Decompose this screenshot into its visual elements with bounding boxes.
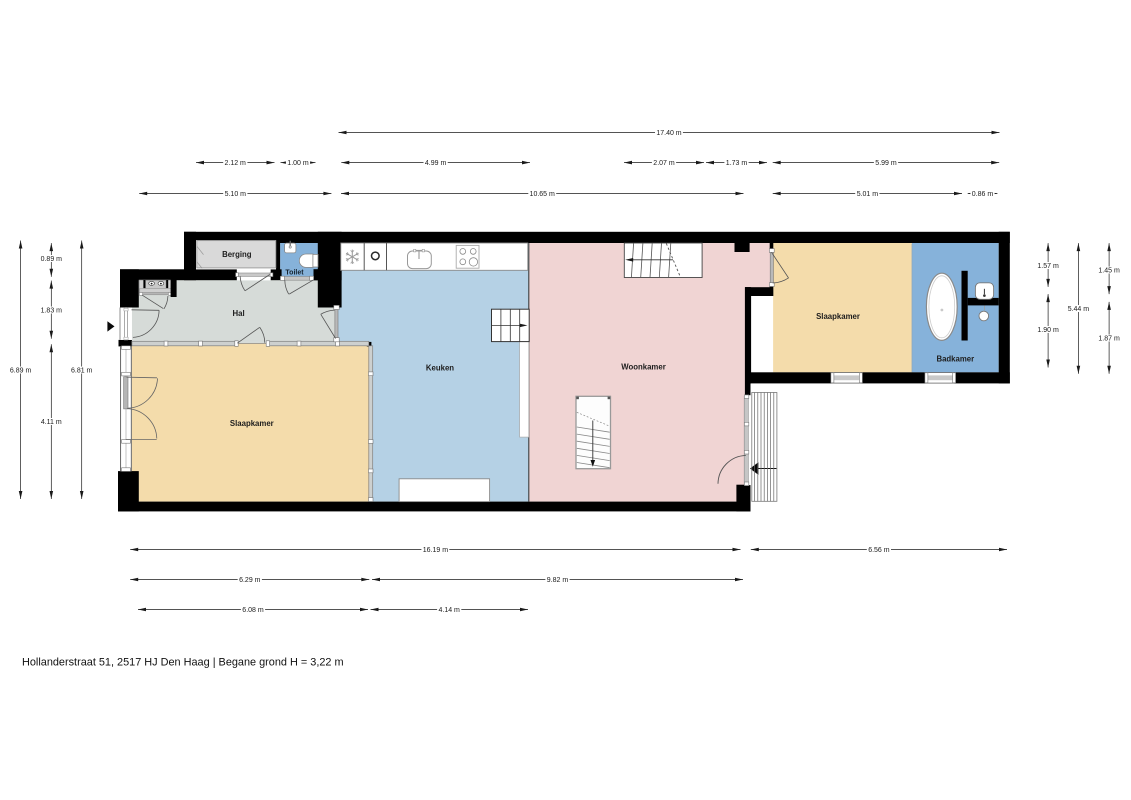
svg-text:6.56 m: 6.56 m <box>868 547 890 554</box>
svg-text:5.99 m: 5.99 m <box>875 160 897 167</box>
svg-text:10.65 m: 10.65 m <box>530 191 555 198</box>
svg-text:1.00 m: 1.00 m <box>287 160 309 167</box>
svg-text:5.44 m: 5.44 m <box>1068 306 1090 313</box>
svg-text:4.99 m: 4.99 m <box>425 160 447 167</box>
svg-text:Berging: Berging <box>222 250 252 259</box>
svg-text:6.81 m: 6.81 m <box>71 367 93 374</box>
svg-text:0.89 m: 0.89 m <box>41 256 63 263</box>
svg-text:5.10 m: 5.10 m <box>225 191 247 198</box>
svg-text:4.11 m: 4.11 m <box>41 419 62 426</box>
svg-text:1.87 m: 1.87 m <box>1098 335 1120 342</box>
svg-text:17.40 m: 17.40 m <box>656 130 681 137</box>
svg-text:1.45 m: 1.45 m <box>1098 267 1120 274</box>
svg-text:Slaapkamer: Slaapkamer <box>816 312 860 321</box>
svg-text:Hollanderstraat 51, 2517 HJ De: Hollanderstraat 51, 2517 HJ Den Haag | B… <box>22 657 344 669</box>
svg-text:Badkamer: Badkamer <box>936 355 974 364</box>
svg-text:Woonkamer: Woonkamer <box>621 362 665 371</box>
svg-text:Toilet: Toilet <box>285 270 304 277</box>
svg-text:1.57 m: 1.57 m <box>1037 263 1059 270</box>
svg-text:6.89 m: 6.89 m <box>10 367 32 374</box>
svg-text:Keuken: Keuken <box>426 363 454 372</box>
svg-text:4.14 m: 4.14 m <box>438 607 460 614</box>
svg-text:16.19 m: 16.19 m <box>423 547 448 554</box>
svg-text:Hal: Hal <box>233 309 245 318</box>
svg-text:2.12 m: 2.12 m <box>224 160 246 167</box>
svg-text:6.08 m: 6.08 m <box>242 607 264 614</box>
svg-text:5.01 m: 5.01 m <box>857 191 879 198</box>
svg-text:9.82 m: 9.82 m <box>547 577 569 584</box>
svg-text:1.83 m: 1.83 m <box>41 307 63 314</box>
svg-text:0.86 m: 0.86 m <box>972 191 994 198</box>
svg-text:6.29 m: 6.29 m <box>239 577 261 584</box>
svg-text:1.73 m: 1.73 m <box>726 160 748 167</box>
svg-text:2.07 m: 2.07 m <box>653 160 675 167</box>
svg-text:Slaapkamer: Slaapkamer <box>230 419 274 428</box>
svg-text:1.90 m: 1.90 m <box>1037 327 1059 334</box>
